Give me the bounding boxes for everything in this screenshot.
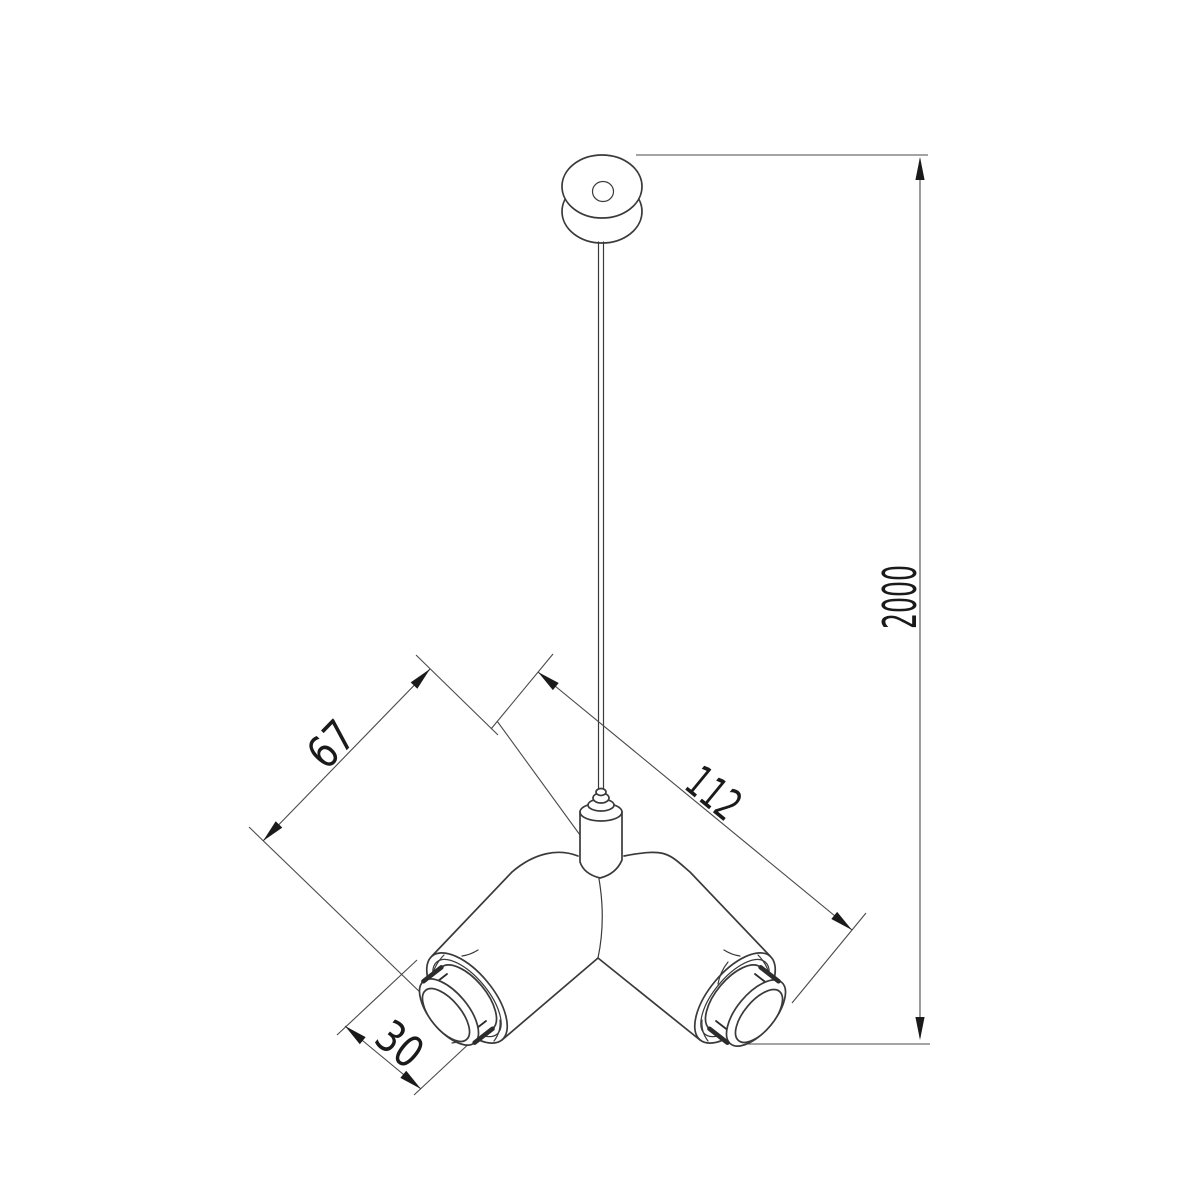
pendant-light-dimension-drawing: 2000 112 67 30 [0, 0, 1200, 1200]
dimension-label-112: 112 [675, 756, 751, 831]
cable-nipple-cap [596, 789, 606, 796]
dimension-67: 67 [260, 666, 434, 844]
extension-line-112-upper [491, 654, 553, 729]
ceiling-canopy [562, 155, 642, 243]
body-reference-line [497, 721, 580, 835]
dimension-30: 30 [342, 1011, 433, 1093]
extension-line-112-lower [792, 913, 866, 1003]
extension-line-67-lower [249, 827, 425, 997]
arrowhead-2000-top [915, 157, 924, 180]
dimension-label-2000: 2000 [873, 565, 927, 629]
dimension-2000: 2000 [873, 157, 927, 1040]
technical-drawing-page: 2000 112 67 30 [0, 0, 1200, 1200]
stem-body [580, 812, 622, 878]
cable-gripper-stem [580, 789, 622, 879]
canopy-top [562, 155, 642, 218]
arrowhead-30-upper [342, 1022, 366, 1044]
suspension-cable [599, 242, 604, 797]
fixture-body [409, 852, 796, 1056]
dimension-label-30: 30 [365, 1011, 433, 1080]
dimension-label-67: 67 [297, 711, 366, 780]
extension-line-67-upper [416, 655, 498, 735]
arrowhead-2000-bottom [915, 1017, 924, 1040]
